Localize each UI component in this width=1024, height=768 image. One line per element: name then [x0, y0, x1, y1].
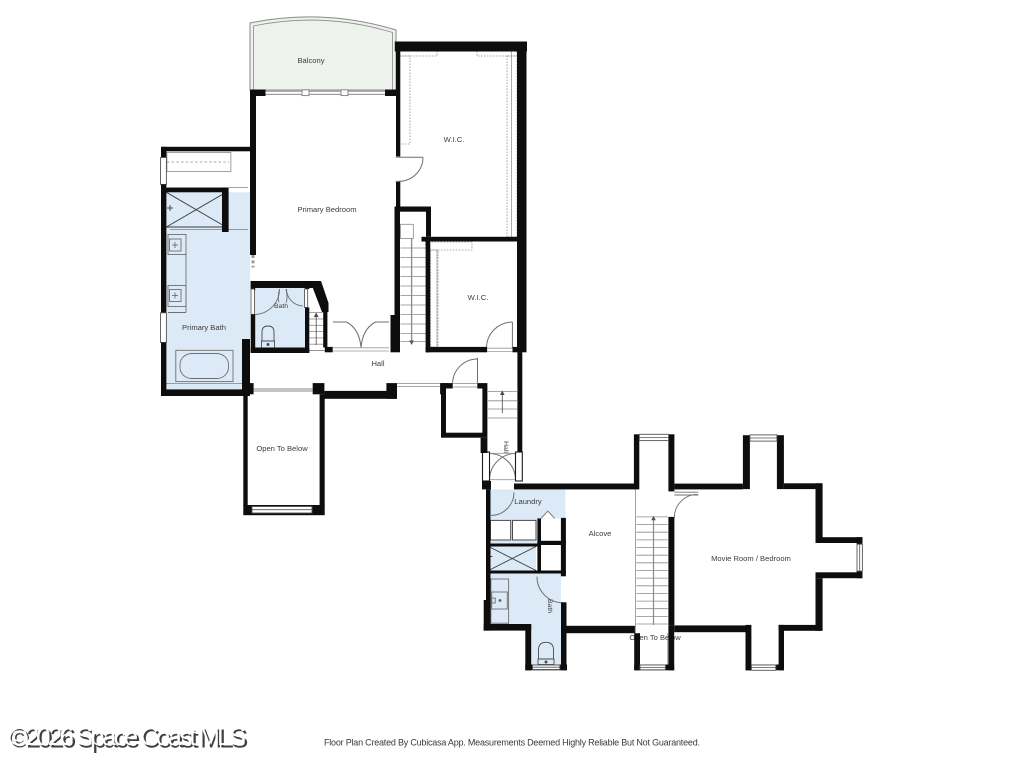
svg-text:Open To Below: Open To Below: [256, 444, 308, 453]
svg-text:Primary Bedroom: Primary Bedroom: [297, 205, 356, 214]
svg-text:Hall: Hall: [371, 359, 384, 368]
svg-text:©2026 Space Coast MLS: ©2026 Space Coast MLS: [8, 721, 246, 751]
svg-text:Bath: Bath: [274, 303, 288, 310]
svg-text:Bath: Bath: [546, 599, 553, 613]
svg-text:Laundry: Laundry: [514, 497, 542, 506]
svg-text:Movie Room / Bedroom: Movie Room / Bedroom: [711, 554, 791, 563]
svg-text:Alcove: Alcove: [589, 529, 612, 538]
svg-text:Floor Plan Created By Cubicasa: Floor Plan Created By Cubicasa App. Meas…: [324, 738, 700, 748]
svg-text:Balcony: Balcony: [297, 56, 324, 65]
svg-text:Primary Bath: Primary Bath: [182, 323, 226, 332]
svg-text:W.I.C.: W.I.C.: [444, 135, 465, 144]
svg-text:Hall: Hall: [502, 441, 509, 453]
svg-text:W.I.C.: W.I.C.: [468, 293, 489, 302]
